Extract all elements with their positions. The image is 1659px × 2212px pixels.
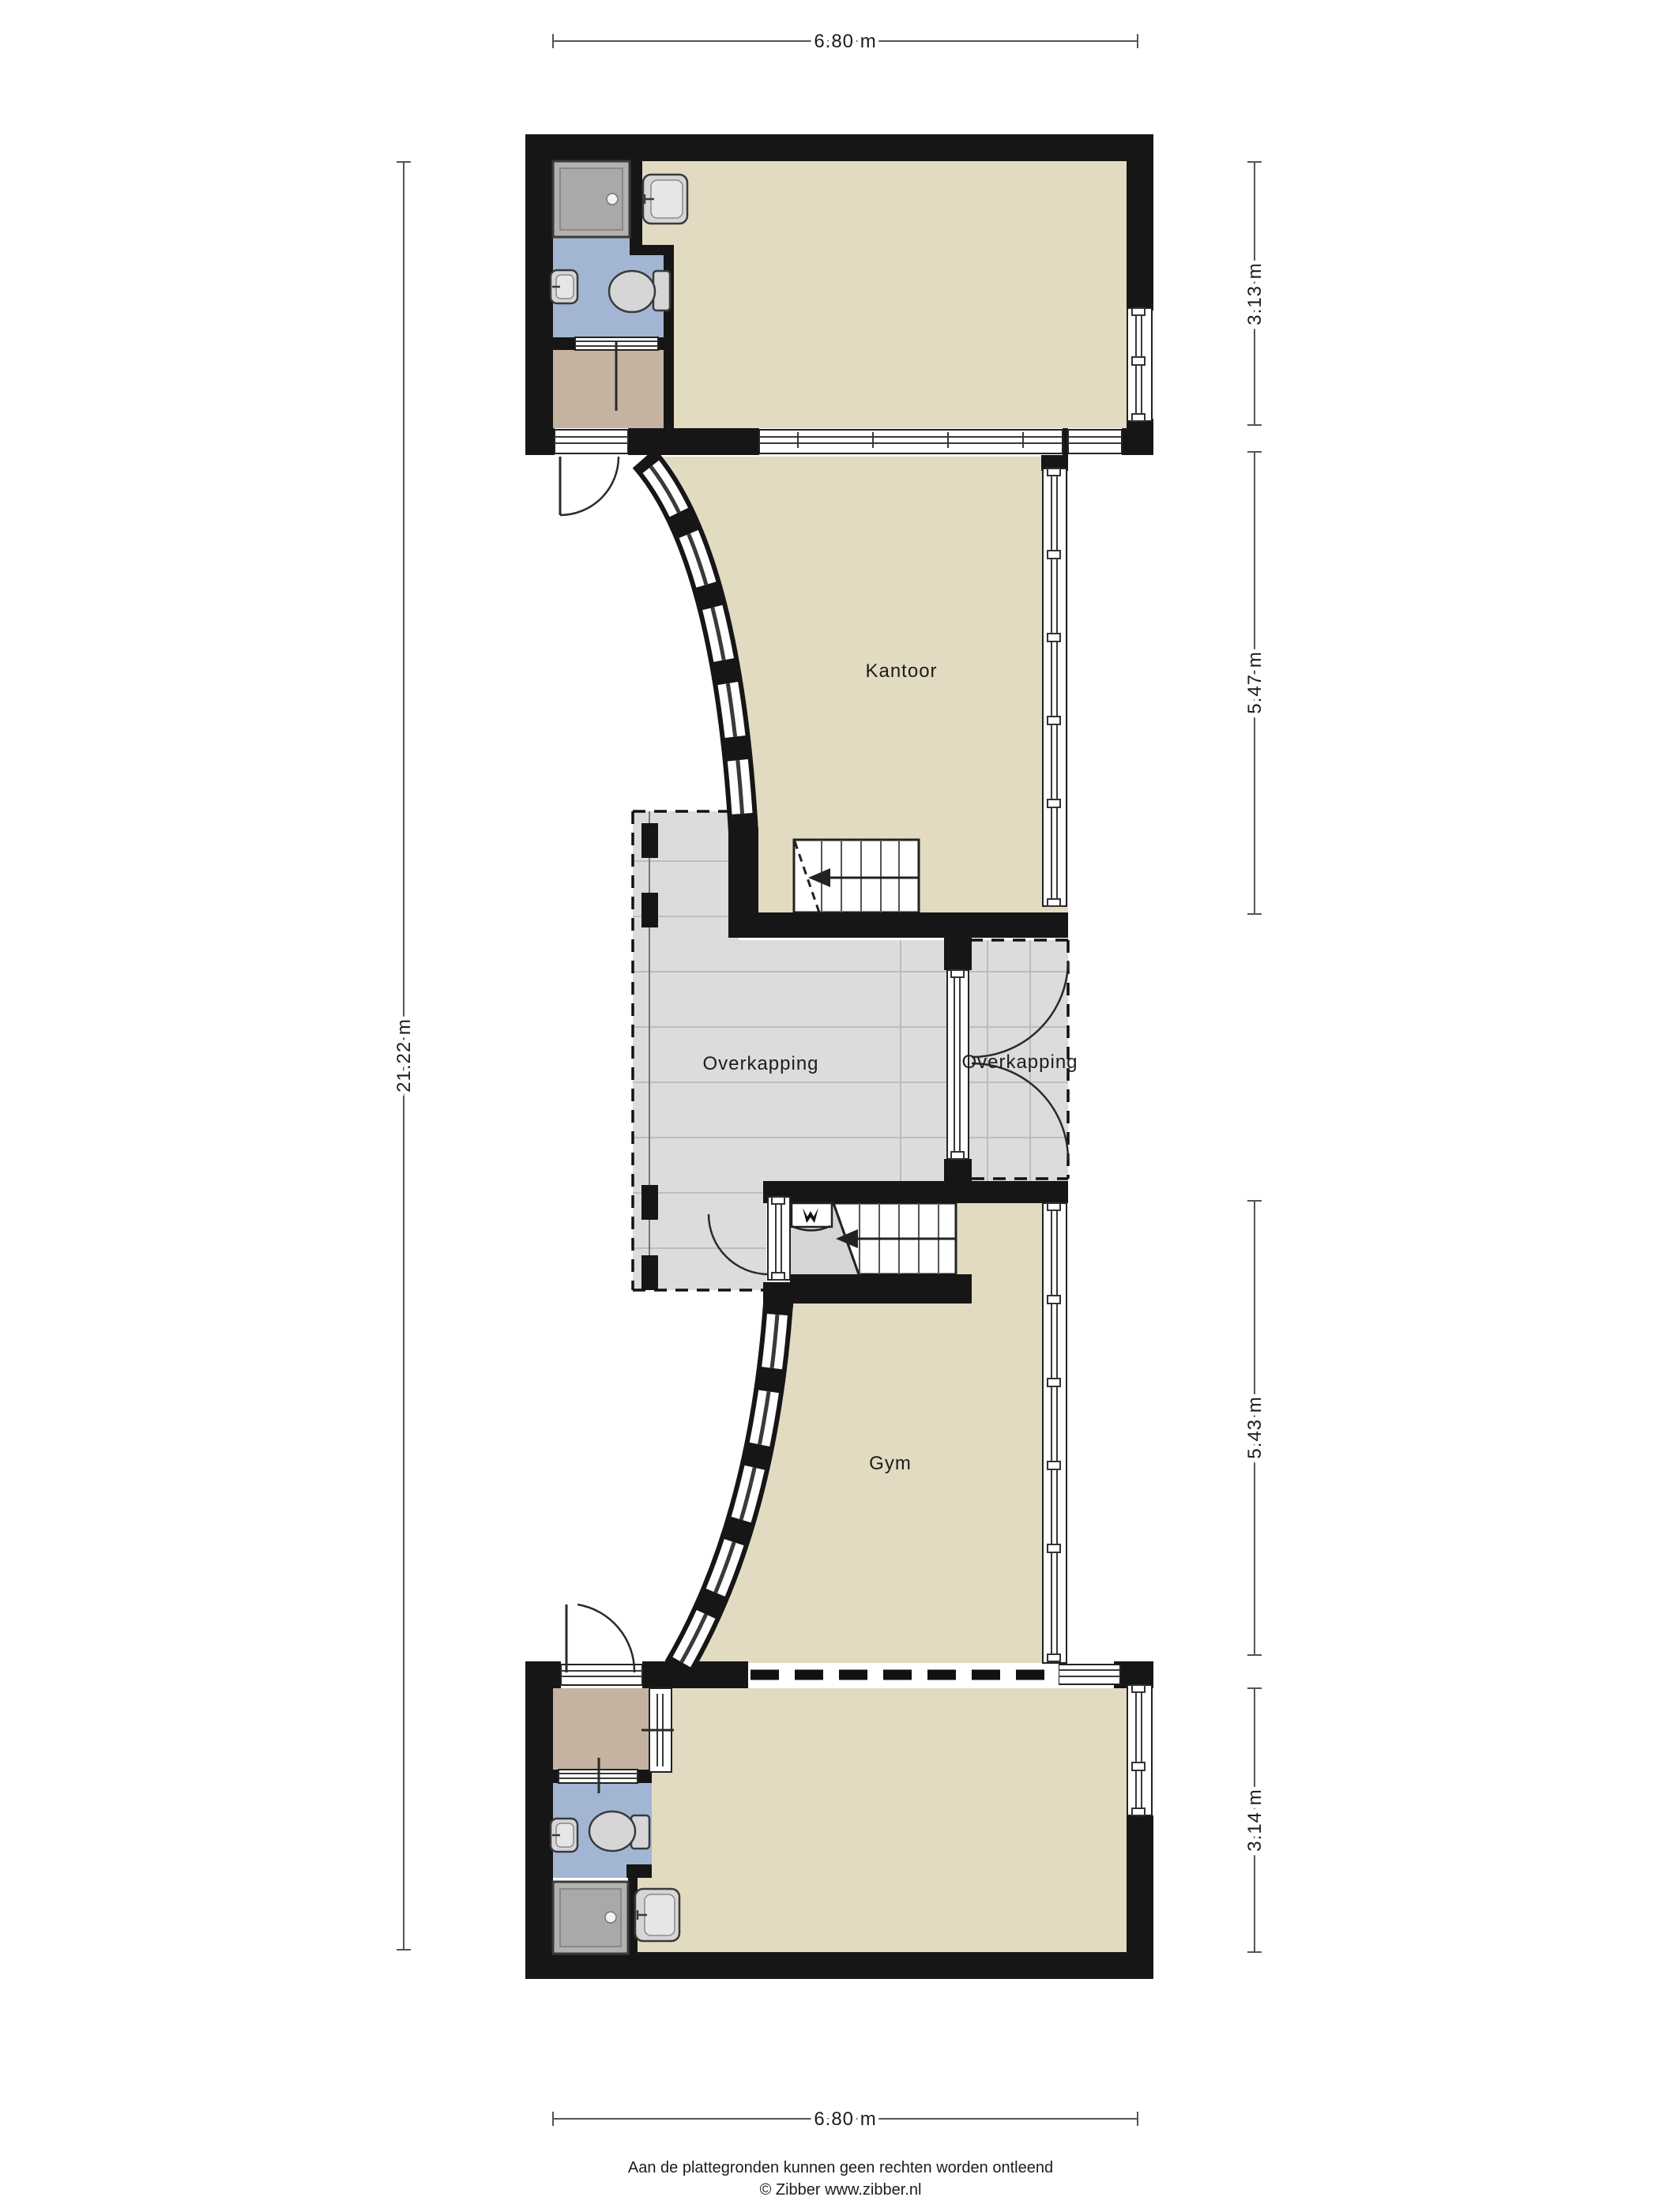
footer-disclaimer: Aan de plattegronden kunnen geen rechten… xyxy=(628,2159,1053,2176)
window-kantoor-right xyxy=(1043,468,1066,906)
toilet-top xyxy=(609,271,670,312)
glass-door-canopy-gym xyxy=(768,1197,790,1280)
dim-bottom: 6.80 m xyxy=(553,2109,1138,2130)
dim-right-2-label: 5.47 m xyxy=(1244,651,1266,713)
footer: Aan de plattegronden kunnen geen rechten… xyxy=(628,2159,1053,2199)
window-bottom-top-wall xyxy=(1059,1665,1120,1684)
window-bottom-right xyxy=(1127,1685,1152,1815)
overkapping-right-label: Overkapping xyxy=(961,1051,1078,1073)
sink-bottom-small xyxy=(551,1819,577,1852)
window-gym-right xyxy=(1043,1203,1066,1663)
window-top-long-right xyxy=(1068,430,1122,453)
dim-right-3-label: 5.43 m xyxy=(1244,1396,1266,1458)
door-bottom-left xyxy=(566,1604,634,1672)
dim-left-label: 21.22 m xyxy=(393,1018,415,1093)
window-top-long xyxy=(759,430,1063,453)
shower-drain-icon xyxy=(605,1912,616,1923)
shower-drain-icon xyxy=(607,194,618,205)
dim-right-4-label: 3.14 m xyxy=(1244,1789,1266,1851)
dim-right-3: 5.43 m xyxy=(1244,1201,1266,1655)
floor-plan-svg: Kantoor Gym Overkapping Overkapping 6.80… xyxy=(0,0,1659,2212)
sink-top-small xyxy=(551,270,577,303)
room-top xyxy=(642,161,1127,428)
dim-top-label: 6.80 m xyxy=(814,31,876,52)
toilet-bottom xyxy=(589,1811,649,1851)
kantoor-label: Kantoor xyxy=(865,660,937,682)
hall-bottom xyxy=(553,1688,649,1772)
room-bottom xyxy=(638,1688,1127,1952)
dim-right-4: 3.14 m xyxy=(1244,1688,1266,1952)
glazed-door-bottom-left xyxy=(561,1665,642,1685)
opening-dashed-bottom xyxy=(748,1664,1059,1686)
footer-copyright: © Zibber www.zibber.nl xyxy=(760,2181,922,2199)
dim-bottom-label: 6.80 m xyxy=(814,2109,876,2130)
glazed-door-top-left xyxy=(555,430,628,453)
shower-tray-bottom xyxy=(553,1882,628,1954)
dim-right-2: 5.47 m xyxy=(1244,452,1266,914)
sink-top-large xyxy=(643,175,687,224)
dim-right-1-label: 3.13 m xyxy=(1244,262,1266,325)
hall-top xyxy=(553,350,664,428)
dim-right-1: 3.13 m xyxy=(1244,162,1266,425)
overkapping-left-label: Overkapping xyxy=(702,1053,818,1074)
shower-tray-top xyxy=(553,161,630,237)
floor-plan-page: Kantoor Gym Overkapping Overkapping 6.80… xyxy=(0,0,1659,2212)
stairs-upper xyxy=(794,840,919,912)
sink-bottom-large xyxy=(635,1889,679,1941)
utility-closet xyxy=(792,1203,832,1231)
dim-top: 6.80 m xyxy=(553,31,1138,52)
dim-left: 21.22 m xyxy=(393,162,415,1950)
gym-label: Gym xyxy=(869,1453,912,1474)
door-top-left xyxy=(560,457,619,515)
window-top-right xyxy=(1127,308,1152,421)
